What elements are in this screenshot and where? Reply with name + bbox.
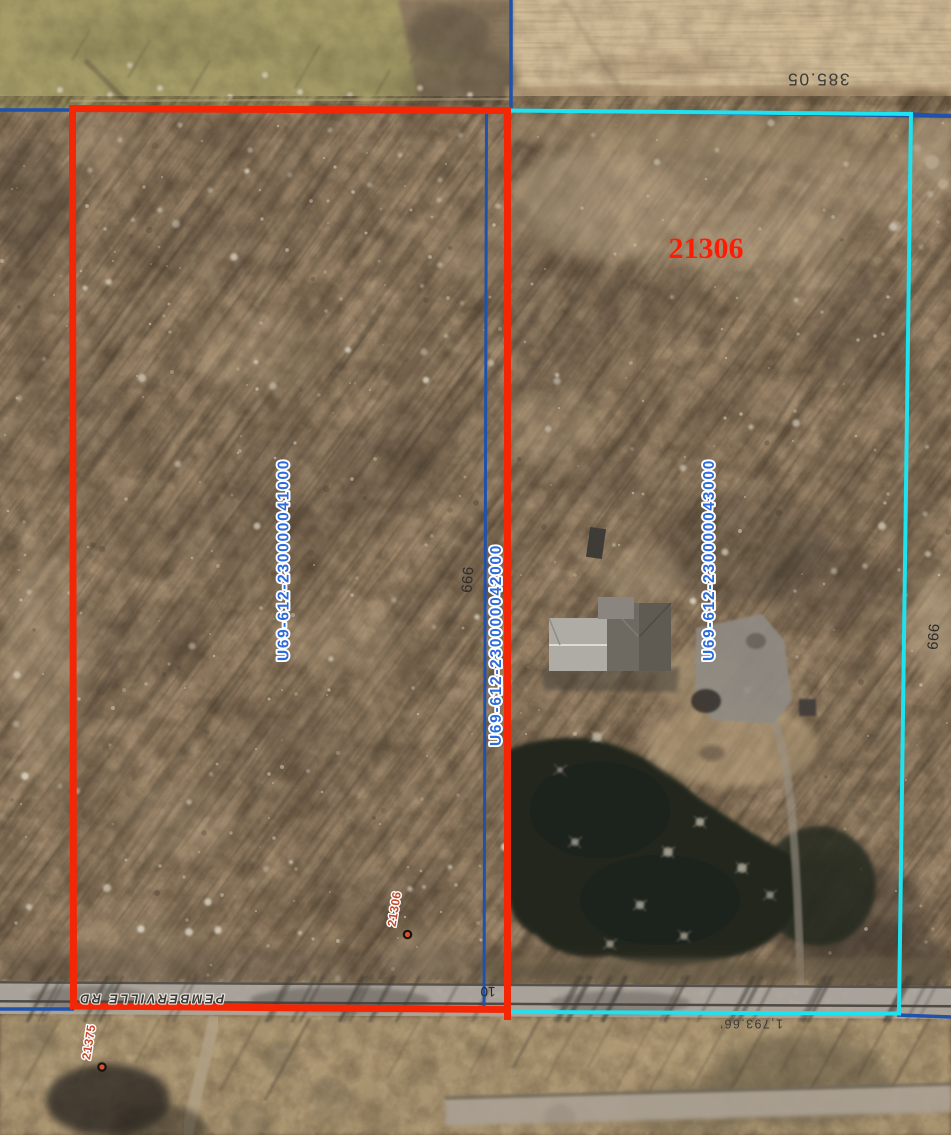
svg-text:999: 999 (923, 623, 942, 651)
svg-text:999: 999 (457, 566, 476, 594)
svg-text:U69-612-230000041000: U69-612-230000041000 (276, 459, 293, 661)
svg-text:21306: 21306 (669, 232, 744, 265)
svg-text:PEMBERVILLE RD: PEMBERVILLE RD (78, 992, 225, 1006)
svg-text:10: 10 (480, 984, 495, 999)
svg-text:1,793.66’: 1,793.66’ (719, 1017, 783, 1031)
svg-text:385.05: 385.05 (786, 70, 849, 90)
svg-text:U69-612-230000043000: U69-612-230000043000 (701, 459, 718, 661)
svg-text:U69-612-230000042000: U69-612-230000042000 (488, 544, 505, 746)
